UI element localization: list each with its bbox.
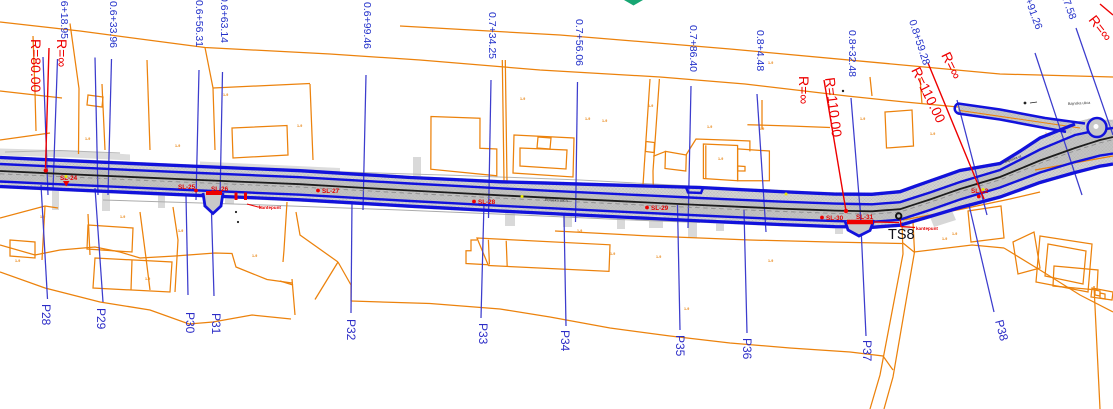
svg-text:1-9: 1-9 bbox=[223, 93, 228, 97]
svg-text:SL-32: SL-32 bbox=[971, 188, 989, 195]
svg-text:SL-25: SL-25 bbox=[178, 184, 196, 191]
svg-text:P29: P29 bbox=[94, 308, 108, 330]
svg-text:SL-27: SL-27 bbox=[322, 188, 340, 195]
svg-text:SL-29: SL-29 bbox=[651, 205, 669, 212]
svg-text:1-9: 1-9 bbox=[145, 277, 150, 281]
svg-text:SL-28: SL-28 bbox=[478, 199, 496, 206]
svg-text:R=∞: R=∞ bbox=[796, 76, 812, 104]
svg-text:1-9: 1-9 bbox=[768, 61, 773, 65]
svg-text:1-9: 1-9 bbox=[942, 237, 947, 241]
svg-text:1-9: 1-9 bbox=[718, 157, 723, 161]
svg-text:0.7+34.25: 0.7+34.25 bbox=[486, 12, 498, 59]
svg-text:0.7+56.06: 0.7+56.06 bbox=[573, 19, 585, 66]
svg-text:1-9: 1-9 bbox=[577, 229, 582, 233]
svg-text:0.6+63.14: 0.6+63.14 bbox=[218, 0, 230, 43]
svg-text:0.8+4.48: 0.8+4.48 bbox=[754, 30, 766, 71]
svg-text:1-9: 1-9 bbox=[15, 259, 20, 263]
svg-text:1-9: 1-9 bbox=[610, 252, 615, 256]
svg-text:1-9: 1-9 bbox=[768, 259, 773, 263]
svg-text:0.7+86.40: 0.7+86.40 bbox=[687, 25, 699, 72]
svg-text:P35: P35 bbox=[673, 335, 687, 357]
svg-text:SL-24: SL-24 bbox=[60, 175, 78, 182]
svg-text:1-9: 1-9 bbox=[656, 255, 661, 259]
svg-text:Potočka ulica: Potočka ulica bbox=[545, 198, 569, 203]
svg-text:1-9: 1-9 bbox=[602, 119, 607, 123]
svg-text:1-9: 1-9 bbox=[120, 215, 125, 219]
svg-text:SL-26: SL-26 bbox=[211, 186, 229, 193]
svg-text:1-9: 1-9 bbox=[175, 144, 180, 148]
svg-text:P37: P37 bbox=[860, 340, 874, 362]
svg-text:R=80.00: R=80.00 bbox=[28, 39, 44, 93]
svg-text:1-9: 1-9 bbox=[707, 125, 712, 129]
svg-text:TS8: TS8 bbox=[888, 227, 915, 243]
svg-text:P28: P28 bbox=[39, 304, 53, 326]
svg-text:1-9: 1-9 bbox=[648, 104, 653, 108]
svg-text:P30: P30 bbox=[183, 312, 197, 334]
svg-text:1-9: 1-9 bbox=[684, 307, 689, 311]
svg-text:P31: P31 bbox=[209, 313, 223, 335]
svg-text:0.6+99.46: 0.6+99.46 bbox=[361, 2, 373, 49]
svg-text:1-9: 1-9 bbox=[860, 117, 865, 121]
svg-text:1-9: 1-9 bbox=[252, 254, 257, 258]
svg-text:1-9: 1-9 bbox=[930, 132, 935, 136]
svg-text:P33: P33 bbox=[476, 323, 490, 345]
svg-text:P34: P34 bbox=[558, 330, 572, 352]
svg-text:kantepunt: kantepunt bbox=[916, 226, 938, 231]
svg-text:1-9: 1-9 bbox=[585, 117, 590, 121]
svg-text:R=∞: R=∞ bbox=[54, 39, 70, 67]
svg-text:P32: P32 bbox=[344, 319, 358, 341]
svg-text:0.6+56.31: 0.6+56.31 bbox=[193, 0, 205, 47]
svg-text:kantepunt: kantepunt bbox=[259, 205, 281, 210]
svg-text:0.8+32.48: 0.8+32.48 bbox=[846, 30, 858, 77]
svg-text:SL-30: SL-30 bbox=[826, 215, 844, 222]
svg-text:1-9: 1-9 bbox=[85, 137, 90, 141]
svg-text:1-9: 1-9 bbox=[297, 124, 302, 128]
svg-text:P36: P36 bbox=[740, 338, 754, 360]
svg-text:0.6+18.95: 0.6+18.95 bbox=[58, 0, 70, 39]
svg-text:1-9: 1-9 bbox=[178, 229, 183, 233]
svg-text:0.6+33.96: 0.6+33.96 bbox=[107, 1, 119, 48]
svg-text:1-9: 1-9 bbox=[952, 232, 957, 236]
svg-text:1-9: 1-9 bbox=[520, 97, 525, 101]
svg-text:SL-31: SL-31 bbox=[856, 214, 874, 221]
